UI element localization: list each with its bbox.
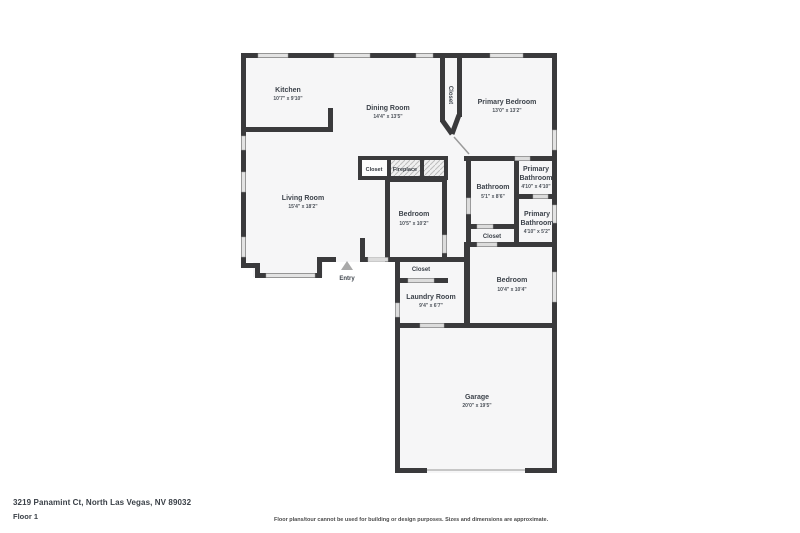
window <box>553 272 557 302</box>
wall-right <box>552 53 557 473</box>
bedroom-mid-dims: 10'5" x 10'2" <box>399 221 429 227</box>
door <box>408 279 434 283</box>
door <box>396 303 400 317</box>
window <box>242 237 246 257</box>
garage-dims: 20'0" x 19'5" <box>462 403 492 409</box>
kitchen-dims: 10'7" x 9'10" <box>273 96 303 102</box>
door <box>515 157 530 161</box>
primary-bedroom-label: Primary Bedroom <box>478 99 537 106</box>
primary-bath2-dims: 4'10" x 5'2" <box>524 229 551 235</box>
door <box>477 225 493 229</box>
floor-plan-page: Kitchen 10'7" x 9'10" Dining Room 14'4" … <box>0 0 800 533</box>
living-room-label: Living Room <box>282 195 324 202</box>
laundry-closet-label: Closet <box>412 267 430 273</box>
primary-bath1-line2: Bathroom <box>519 175 552 182</box>
door <box>467 198 471 214</box>
dining-dims: 14'4" x 13'5" <box>373 114 403 120</box>
hall-closet-label: Closet <box>447 86 453 104</box>
hatch-box <box>424 160 444 176</box>
living-room-dims: 15'4" x 18'2" <box>288 204 318 210</box>
floor-number: Floor 1 <box>13 512 38 521</box>
bathroom-label: Bathroom <box>476 184 509 191</box>
primary-bedroom-dims: 13'0" x 13'2" <box>492 108 522 114</box>
window <box>242 136 246 150</box>
door <box>533 195 548 199</box>
door <box>477 243 497 247</box>
door <box>443 235 447 253</box>
front-door <box>368 258 388 262</box>
window <box>553 130 557 150</box>
door <box>420 324 444 328</box>
window <box>334 54 370 58</box>
bath-closet-label: Closet <box>483 234 501 240</box>
floor-plan-drawing: Kitchen 10'7" x 9'10" Dining Room 14'4" … <box>0 0 800 533</box>
fireplace-closet-label: Closet <box>366 167 383 173</box>
laundry-label: Laundry Room <box>406 294 455 301</box>
window <box>416 54 433 58</box>
primary-bath1-line1: Primary <box>523 166 549 173</box>
primary-bath1-dims: 4'10" x 4'10" <box>521 184 551 190</box>
bedroom-mid-label: Bedroom <box>399 211 430 218</box>
entry-label: Entry <box>339 276 355 282</box>
window <box>242 172 246 192</box>
fireplace-label: Fireplace <box>393 167 417 173</box>
wall-left <box>241 53 246 268</box>
dining-label: Dining Room <box>366 105 410 112</box>
bathroom-dims: 5'1" x 8'6" <box>481 194 505 200</box>
window <box>490 54 523 58</box>
entry-arrow-icon <box>341 261 353 270</box>
property-address: 3219 Panamint Ct, North Las Vegas, NV 89… <box>13 498 191 507</box>
bay-window <box>266 274 315 278</box>
bedroom-low-label: Bedroom <box>497 277 528 284</box>
window <box>258 54 288 58</box>
kitchen-label: Kitchen <box>275 87 301 94</box>
disclaimer-text: Floor plans/tour cannot be used for buil… <box>274 517 548 523</box>
bedroom-low-dims: 10'4" x 10'4" <box>497 287 527 293</box>
laundry-dims: 9'4" x 6'7" <box>419 303 443 309</box>
primary-bath2-line1: Primary <box>524 211 550 218</box>
primary-bath2-line2: Bathroom <box>520 220 553 227</box>
garage-label: Garage <box>465 394 489 401</box>
